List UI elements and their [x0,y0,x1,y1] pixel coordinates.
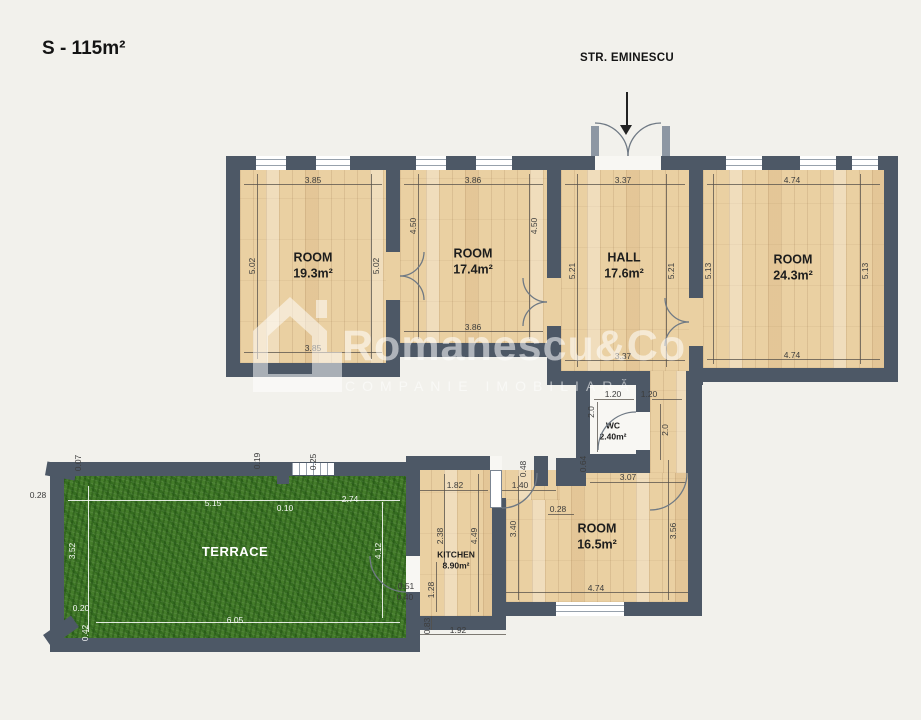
wall [884,156,898,382]
kitchen-door-leaf [490,470,502,508]
wall [547,156,561,385]
dimension-label: 3.85 [305,344,322,353]
dimension-label: 4.74 [588,584,605,593]
dimension-label: 1.28 [427,582,436,599]
entrance-door-jamb [591,126,599,156]
dimension-line [382,502,383,618]
dimension-label: 0.10 [277,504,294,513]
corridor-floor [650,371,686,473]
dimension-label: 0.48 [519,461,528,478]
dimension-label: 6.05 [227,616,244,625]
wall [689,368,898,382]
dimension-label: 1.20 [605,390,622,399]
dimension-label: 4.74 [784,351,801,360]
dimension-label: 5.21 [568,263,577,280]
room1-room2-opening [386,252,400,300]
dimension-label: 1.20 [641,390,658,399]
dimension-line [597,402,598,452]
dimension-line [502,490,556,491]
dimension-line [518,476,519,600]
dimension-label: 0.20 [73,604,90,613]
wall [688,455,702,616]
room-label-room: ROOM24.3m² [773,252,813,283]
dimension-label: 3.40 [509,521,518,538]
dimension-line [577,174,578,367]
dimension-label: 3.37 [615,176,632,185]
dimension-label: 4.49 [470,528,479,545]
room-label-room: ROOM17.4m² [453,246,493,277]
dimension-label: 4.12 [374,543,383,560]
dimension-label: 5.21 [667,263,676,280]
wall [50,462,406,476]
window [800,156,836,170]
dimension-label: 1.82 [447,481,464,490]
dimension-line [594,399,634,400]
room-label-terrace: TERRACE [202,544,268,560]
wall [406,456,420,556]
room-label-room: ROOM16.5m² [577,521,617,552]
dimension-label: 0.64 [579,456,588,473]
dimension-label: 5.13 [861,263,870,280]
wall [277,462,289,484]
window [852,156,878,170]
dimension-label: 1.40 [512,481,529,490]
page-title: S - 115m² [42,38,125,60]
wall [492,602,556,616]
dimension-line [257,174,258,359]
dimension-label: 4.50 [409,218,418,235]
wall [689,156,703,382]
window [256,156,286,170]
hall-room4-opening [689,298,703,346]
dimension-label: 5.13 [704,263,713,280]
wall [226,156,240,377]
floor-plan: S - 115m² STR. EMINESCU 3.855.025.023.85… [0,0,921,720]
wc-door-opening [636,412,650,450]
dimension-label: 3.85 [305,176,322,185]
dimension-label: 0.19 [253,453,262,470]
room-label-kitchen: KITCHEN8.90m² [437,549,475,570]
dimension-line [529,174,530,339]
wall [386,343,561,357]
dimension-label: 5.02 [372,258,381,275]
room-label-wc: WC2.40m² [600,420,627,441]
dimension-label: 1.92 [450,626,467,635]
dimension-label: 2.0 [587,406,596,418]
dimension-label: 0.28 [550,505,567,514]
dimension-label: 3.56 [669,523,678,540]
dimension-label: 0.83 [423,618,432,635]
dimension-label: 0.51 [398,582,415,591]
dimension-label: 2.74 [342,495,359,504]
dimension-label: 0.40 [397,593,414,602]
dimension-label: 3.37 [615,352,632,361]
dimension-label: 0.07 [74,455,83,472]
dimension-label: 3.86 [465,323,482,332]
entrance-arrow-line [626,92,628,126]
window [316,156,350,170]
street-label: STR. EMINESCU [580,52,674,64]
wall [586,458,650,473]
dimension-label: 0.42 [81,625,90,642]
wall [534,456,548,486]
dimension-label: 0.25 [309,454,318,471]
room-label-hall: HALL17.6m² [604,250,644,281]
dimension-line [548,514,574,515]
wall [547,371,650,385]
dimension-line [590,482,686,483]
window [476,156,512,170]
window [416,156,446,170]
entrance-opening [595,156,661,170]
wall [50,638,406,652]
dimension-label: 3.52 [68,543,77,560]
dimension-label: 4.74 [784,176,801,185]
room2-hall-opening [547,278,561,326]
entrance-door-arc-right [628,123,661,156]
wall [492,498,506,616]
dimension-label: 0.28 [30,491,47,500]
dimension-label: 3.86 [465,176,482,185]
entrance-door-jamb [662,126,670,156]
wall [226,363,400,377]
dimension-label: 2.0 [661,424,670,436]
entrance-arrow-icon [620,125,632,135]
dimension-line [418,174,419,339]
kitchen-door-opening [490,456,502,470]
dimension-label: 3.07 [620,473,637,482]
window [556,602,624,616]
dimension-line [652,399,682,400]
dimension-label: 2.38 [436,528,445,545]
dimension-line [96,622,400,623]
dimension-label: 4.50 [530,218,539,235]
dimension-label: 5.02 [248,258,257,275]
dimension-line [713,174,714,364]
window [726,156,762,170]
room-label-room: ROOM19.3m² [293,250,333,281]
dimension-label: 5.15 [205,499,222,508]
